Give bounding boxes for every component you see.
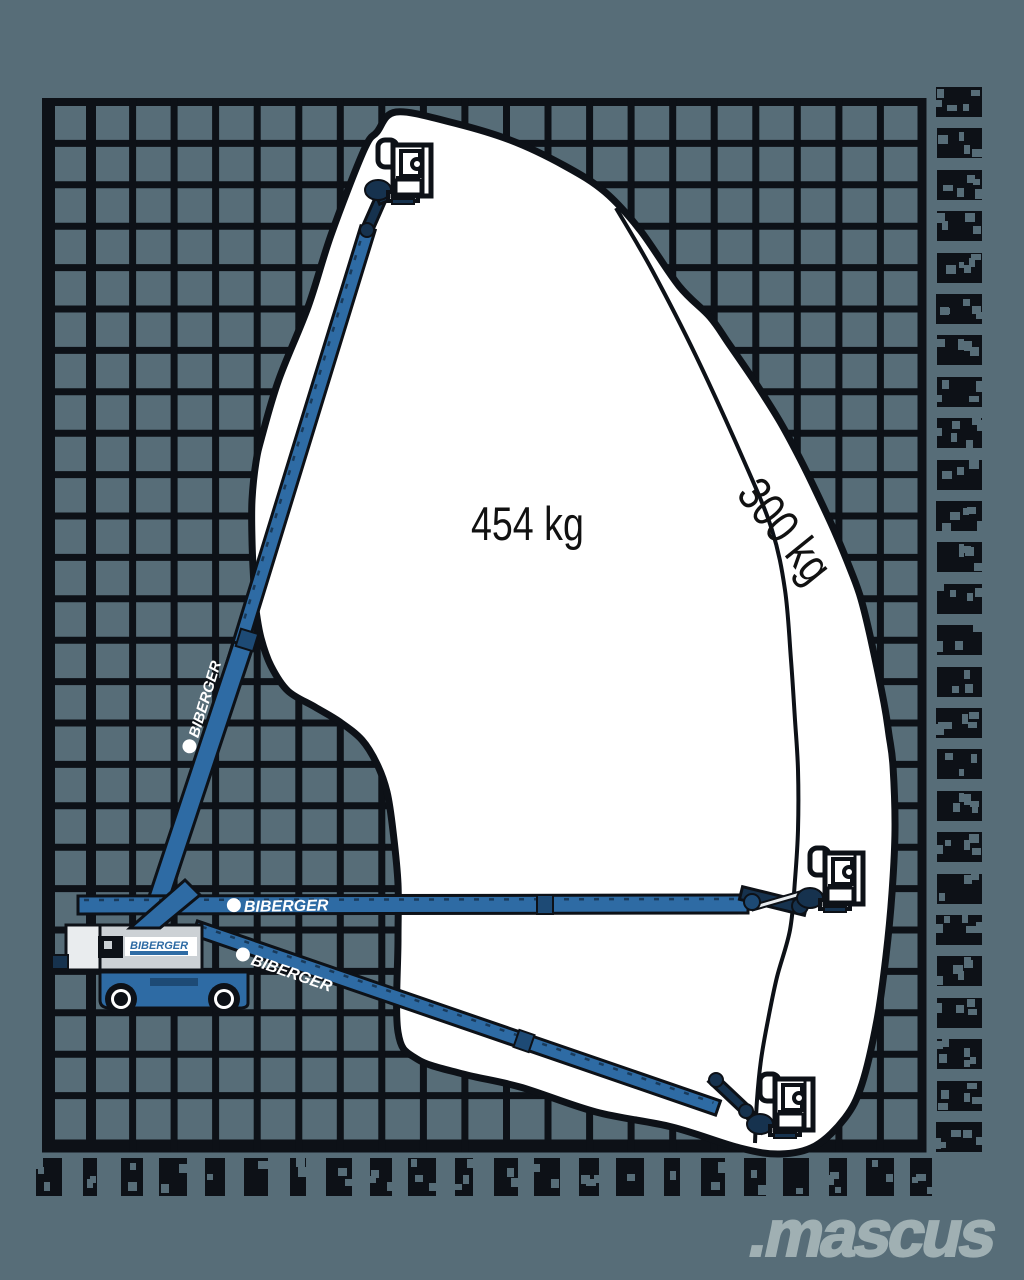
svg-text:454 kg: 454 kg: [471, 498, 584, 551]
svg-text:BIBERGER: BIBERGER: [244, 897, 329, 915]
svg-text:BIBERGER: BIBERGER: [130, 940, 188, 952]
svg-text:.mascus: .mascus: [743, 1198, 1003, 1271]
